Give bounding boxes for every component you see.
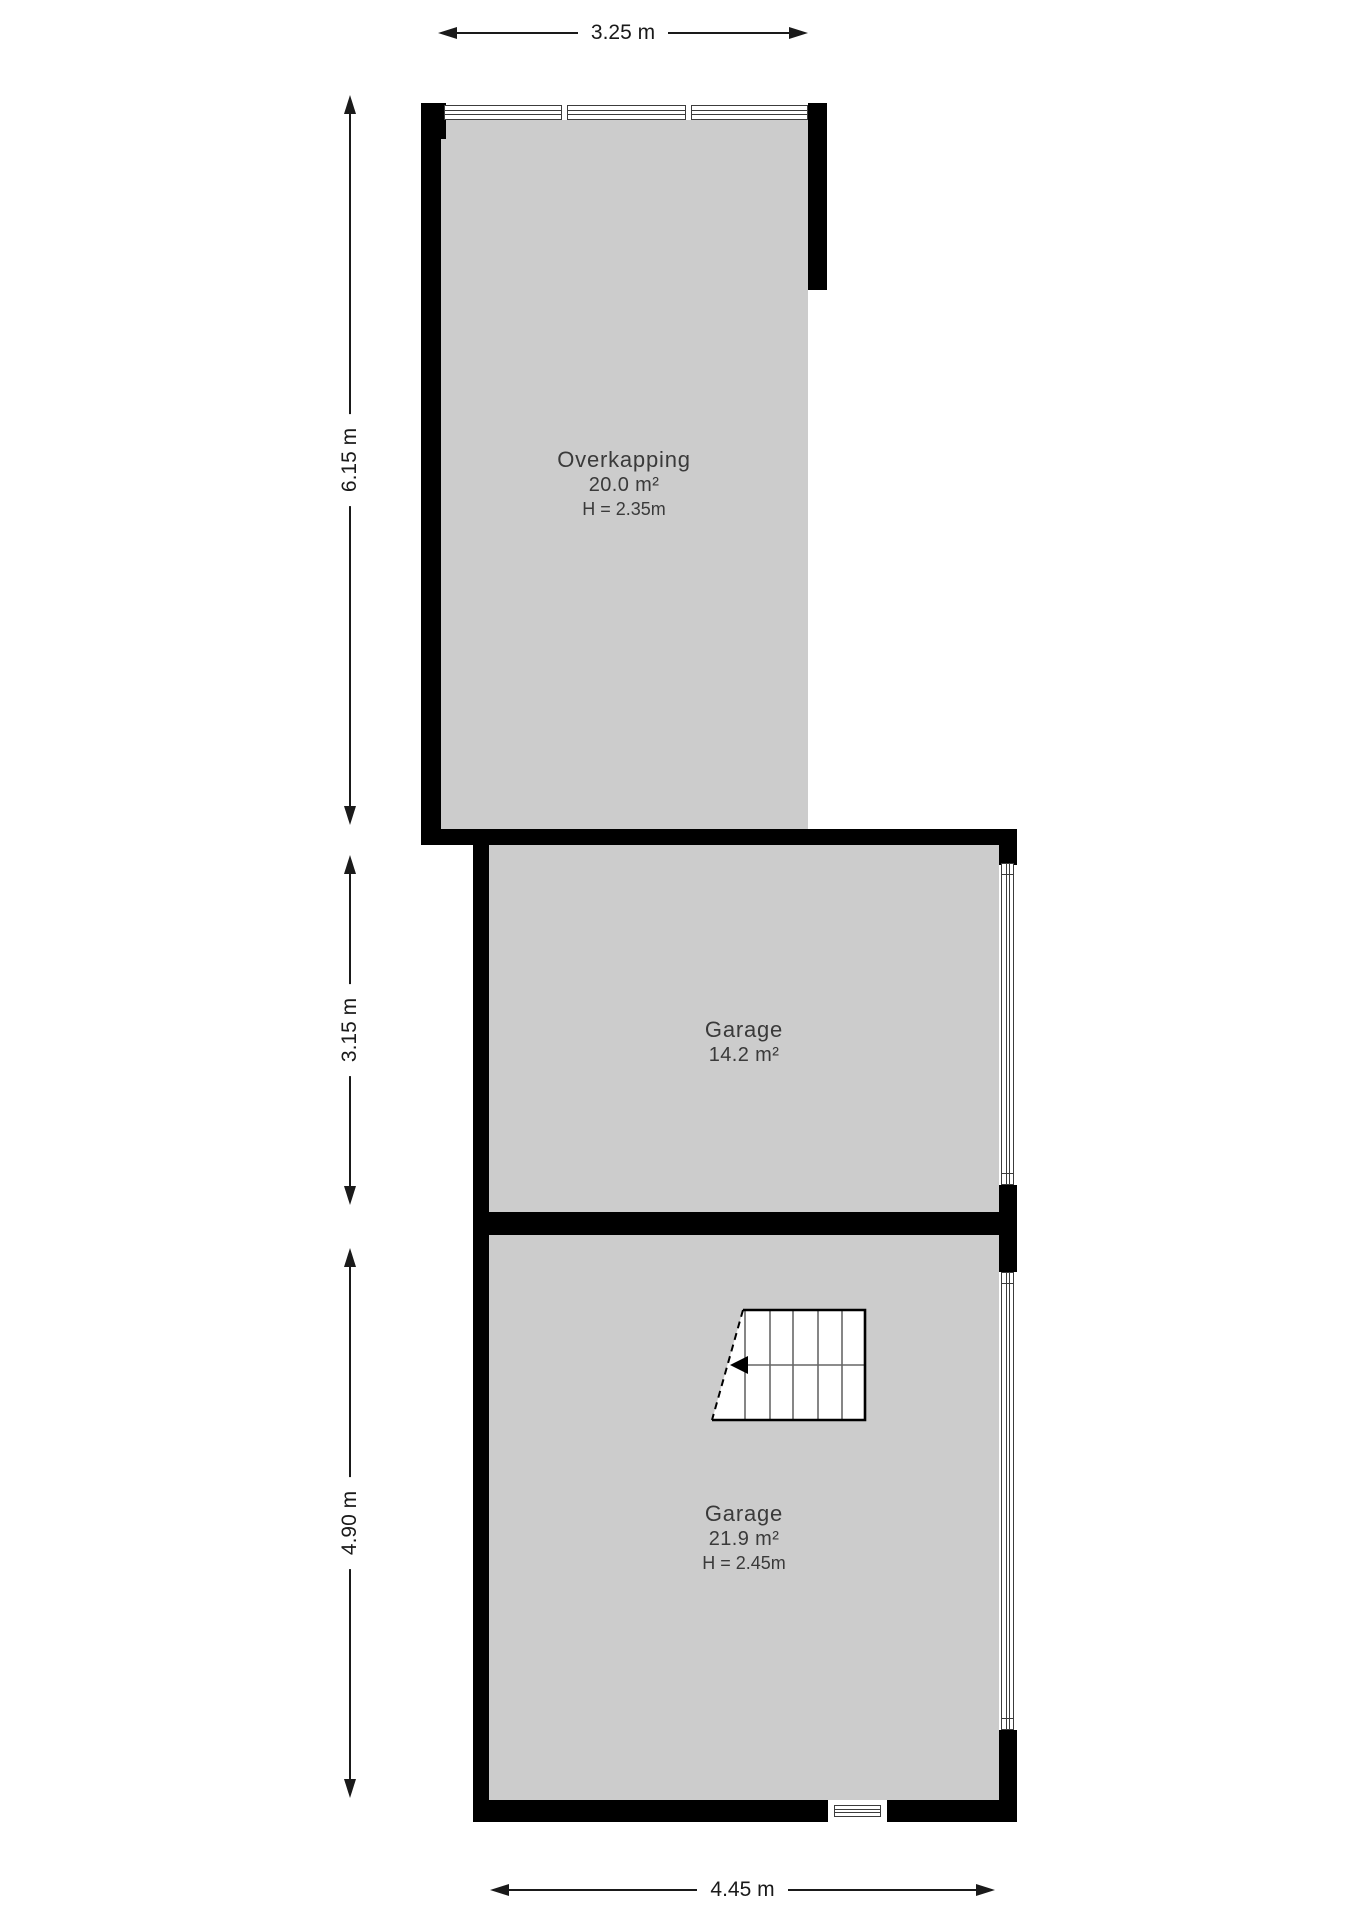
window-end-tick — [1002, 1718, 1013, 1719]
dimension-bottom: 4.45 m — [490, 1880, 995, 1900]
room-name: Overkapping — [557, 446, 691, 473]
room-height: H = 2.35m — [557, 498, 691, 521]
dimension-line — [509, 1889, 697, 1891]
window-mullion-icon — [561, 105, 568, 120]
wall-right-bottom-upper — [999, 1235, 1017, 1272]
dimension-line — [457, 32, 578, 34]
wall-right-overkapping — [808, 103, 827, 290]
window-garage-middle-icon — [1001, 863, 1014, 1185]
dimension-arrow-right-icon — [976, 1884, 995, 1896]
window-end-tick — [1002, 874, 1013, 875]
room-label-garage-bottom: Garage 21.9 m² H = 2.45m — [702, 1500, 786, 1575]
dimension-left-middle: 3.15 m — [340, 855, 360, 1205]
dimension-top: 3.25 m — [438, 23, 808, 43]
room-area: 20.0 m² — [557, 473, 691, 498]
room-area: 21.9 m² — [702, 1527, 786, 1552]
dimension-arrow-down-icon — [344, 806, 356, 825]
room-label-garage-middle: Garage 14.2 m² — [705, 1016, 783, 1068]
window-pane-line — [1006, 1273, 1007, 1729]
window-pane-line — [835, 1812, 880, 1813]
wall-bottom-right-part — [887, 1800, 1017, 1822]
dimension-label: 6.15 m — [338, 414, 362, 506]
window-pane-line — [835, 1809, 880, 1810]
window-bottom-icon — [834, 1805, 881, 1817]
wall-divider-overkapping-garage — [421, 829, 1017, 845]
wall-left-garage-bottom — [473, 1235, 489, 1822]
wall-right-upper-corner — [999, 845, 1017, 865]
room-name: Garage — [702, 1500, 786, 1527]
window-top-icon — [444, 105, 808, 120]
room-area: 14.2 m² — [705, 1043, 783, 1068]
dimension-line — [668, 32, 789, 34]
window-end-tick — [1002, 1173, 1013, 1174]
floor-plan-canvas: Overkapping 20.0 m² H = 2.35m Garage 14.… — [0, 0, 1358, 1920]
dimension-arrow-right-icon — [789, 27, 808, 39]
wall-bottom-left-part — [473, 1800, 828, 1822]
window-pane-line — [1009, 864, 1010, 1184]
room-label-overkapping: Overkapping 20.0 m² H = 2.35m — [557, 446, 691, 521]
dimension-label: 3.15 m — [338, 984, 362, 1076]
window-mullion-icon — [685, 105, 692, 120]
wall-left-garage-middle — [473, 845, 489, 1235]
window-pane-line — [445, 110, 807, 111]
stairs — [705, 1303, 873, 1425]
window-pane-line — [445, 114, 807, 115]
dimension-arrow-left-icon — [490, 1884, 509, 1896]
dimension-arrow-down-icon — [344, 1779, 356, 1798]
window-end-tick — [1002, 1283, 1013, 1284]
room-name: Garage — [705, 1016, 783, 1043]
window-bottom-opening — [828, 1800, 887, 1822]
dimension-line — [788, 1889, 976, 1891]
window-pane-line — [1006, 864, 1007, 1184]
dimension-label: 4.90 m — [338, 1477, 362, 1569]
window-garage-bottom-icon — [1001, 1272, 1014, 1730]
dimension-arrow-down-icon — [344, 1186, 356, 1205]
dimension-arrow-left-icon — [438, 27, 457, 39]
dimension-left-upper: 6.15 m — [340, 95, 360, 825]
window-pane-line — [1009, 1273, 1010, 1729]
wall-divider-garages — [473, 1212, 1017, 1235]
room-height: H = 2.45m — [702, 1552, 786, 1575]
dimension-label: 3.25 m — [578, 21, 668, 45]
dimension-label: 4.45 m — [697, 1878, 787, 1902]
dimension-left-lower: 4.90 m — [340, 1248, 360, 1798]
wall-left-overkapping — [421, 103, 441, 843]
